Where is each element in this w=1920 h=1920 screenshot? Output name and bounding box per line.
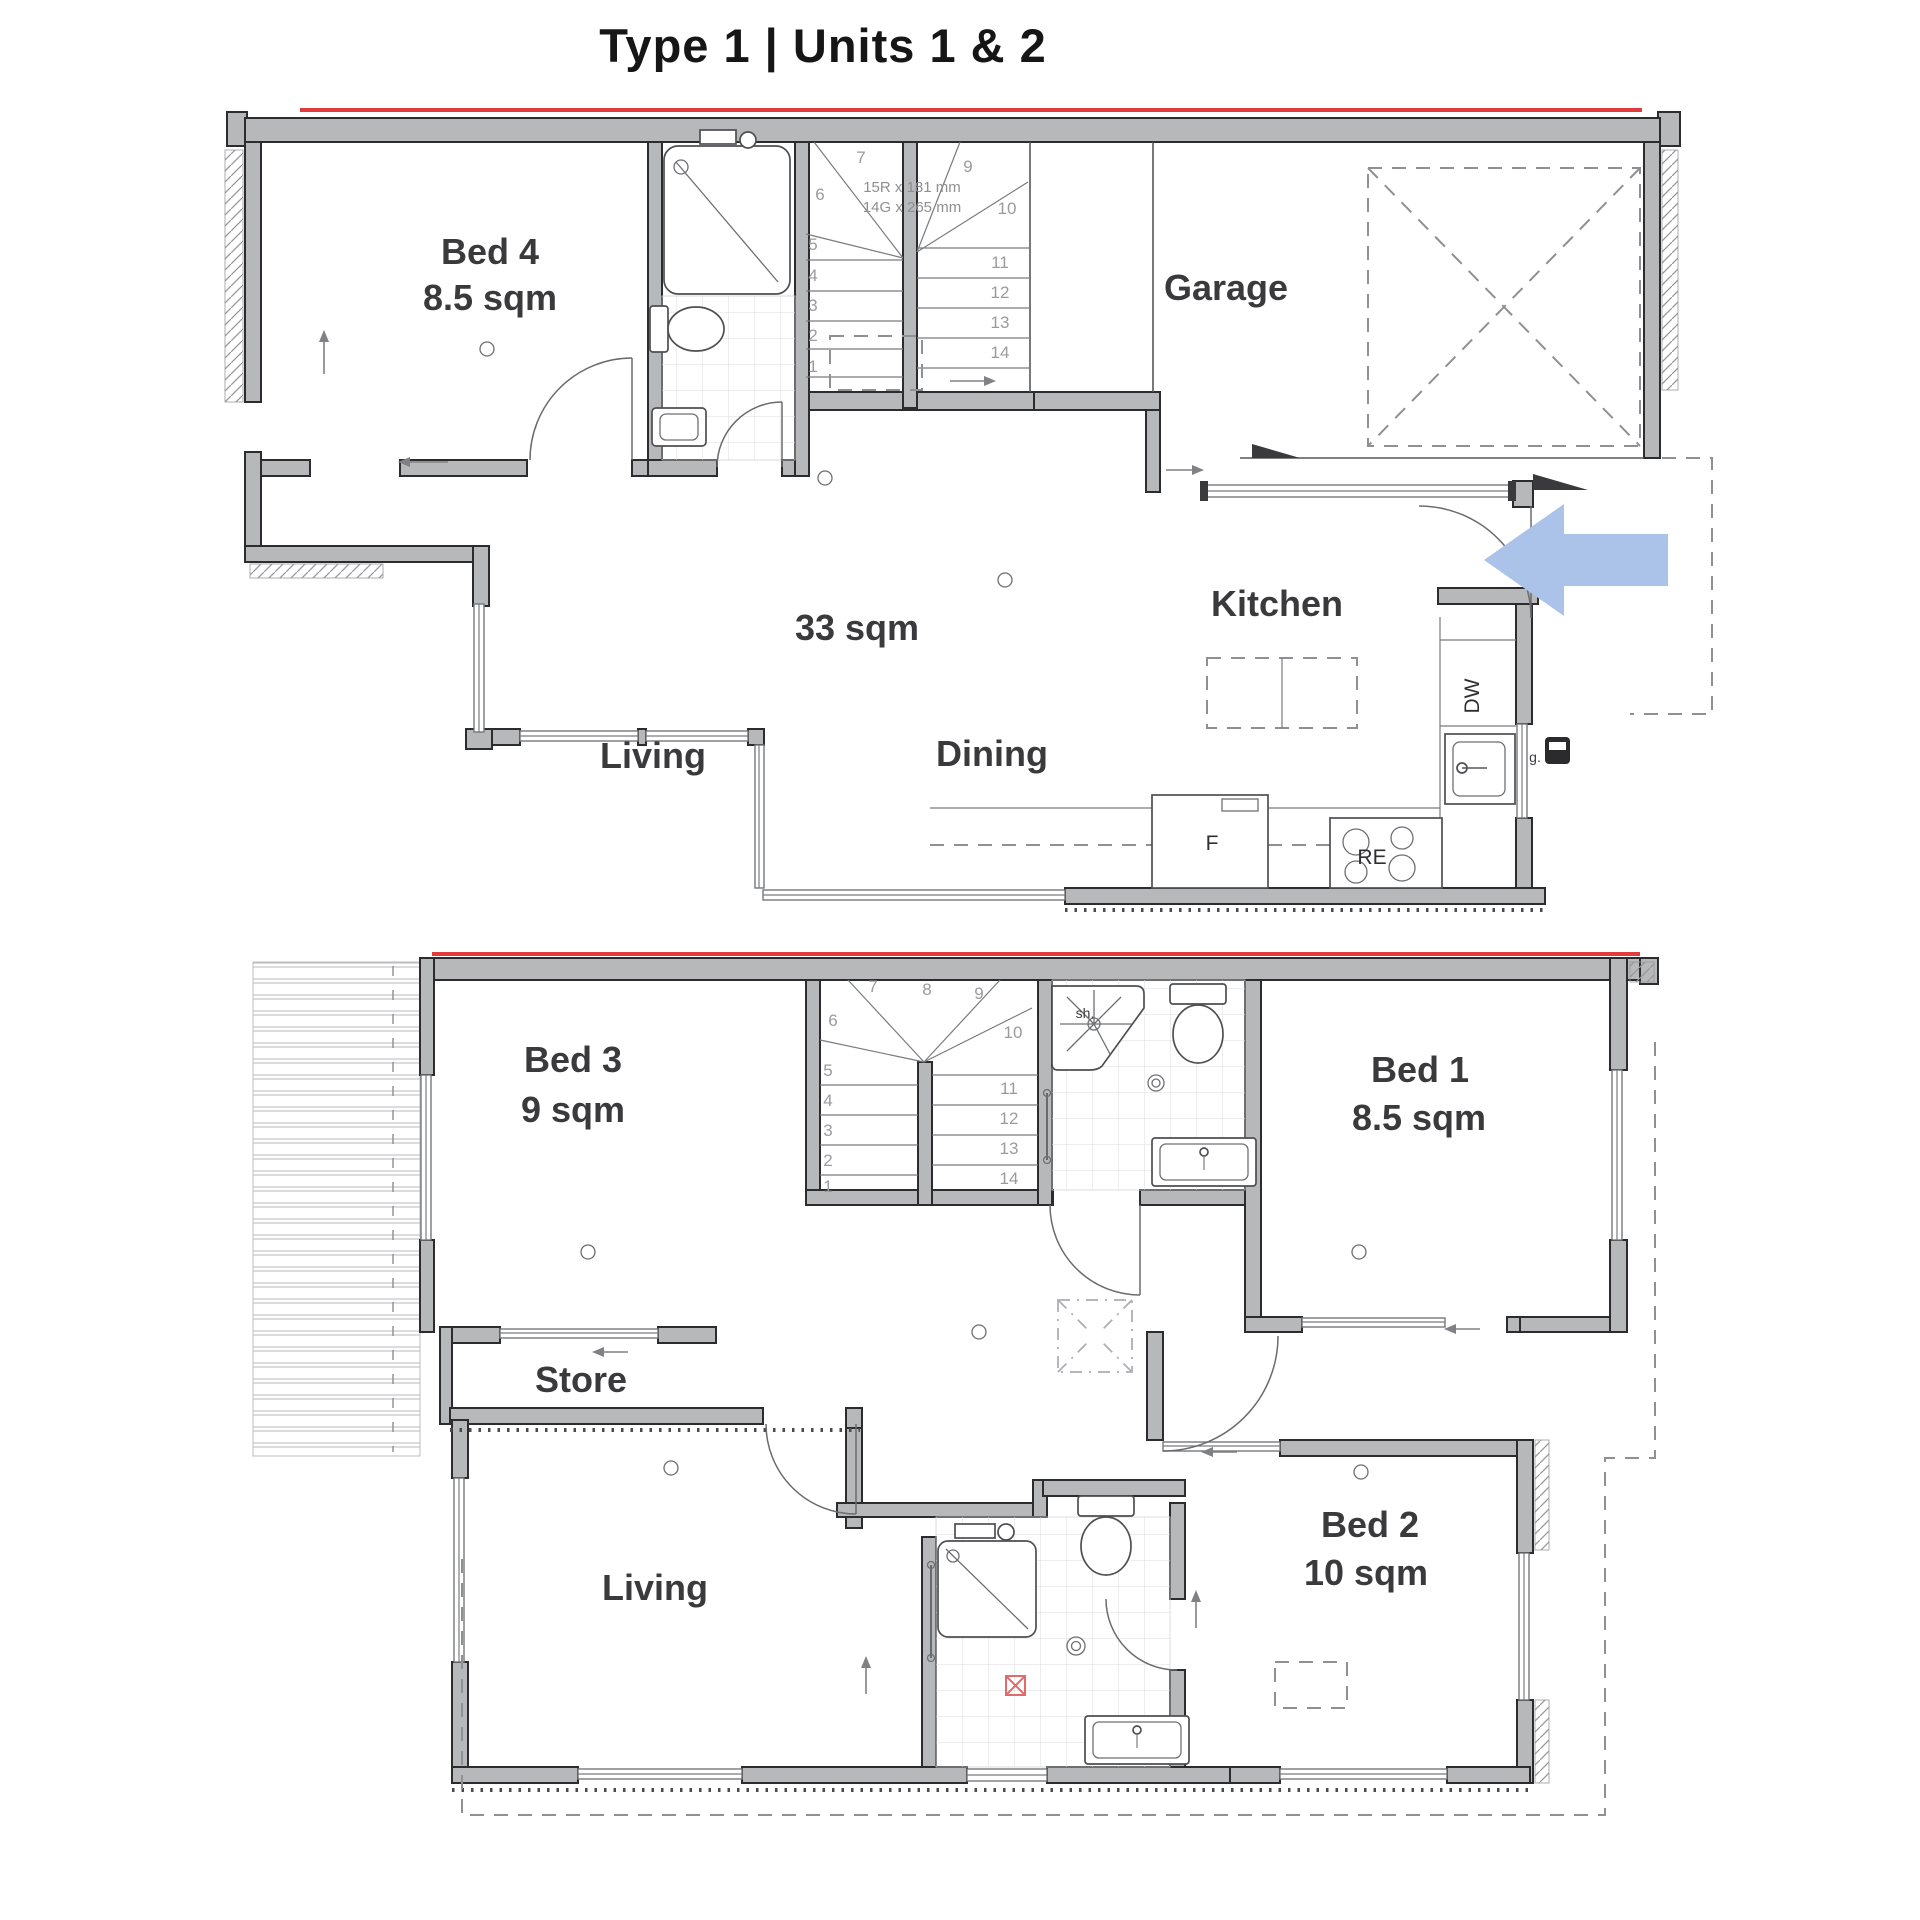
living-door-arc [766,1424,856,1514]
open-area-label: 33 sqm [795,607,919,648]
wardrobe-outline [1275,1662,1347,1708]
upper-bathroom [650,130,795,467]
toilet-icon [1173,1005,1223,1063]
svg-text:3: 3 [808,296,817,315]
stair-note-1: 15R x 181 mm [863,179,961,196]
svg-text:11: 11 [991,253,1009,272]
main-bathroom [928,1496,1190,1767]
svg-text:3: 3 [823,1121,832,1140]
svg-text:7: 7 [868,977,877,996]
bed4-area-label: 8.5 sqm [423,277,557,318]
svg-text:11: 11 [1000,1079,1018,1098]
svg-text:14: 14 [991,343,1010,362]
bed3-area-label: 9 sqm [521,1089,625,1130]
hall [766,1300,1278,1514]
svg-text:1: 1 [823,1177,832,1196]
lower-plan: Bed 3 9 sqm Bed 1 8.5 sqm Store Living B… [253,954,1658,1815]
lower-hatch [1535,962,1654,1783]
floorplan-drawing: Bed 4 8.5 sqm Garage Kitchen 33 sqm Livi… [0,0,1920,1920]
svg-text:9: 9 [963,157,972,176]
bed2-label: Bed 2 [1321,1504,1419,1545]
garage-door-wedge-icon [1252,444,1300,458]
floorplan-page: Type 1 | Units 1 & 2 [0,0,1920,1920]
bed1-door-arc [1163,1336,1278,1451]
svg-text:2: 2 [808,326,817,345]
toilet-cistern-icon [1078,1496,1134,1516]
svg-text:6: 6 [828,1011,837,1030]
bed4-door [530,358,632,460]
living-label-lower: Living [602,1567,708,1608]
kitchen-label: Kitchen [1211,583,1343,624]
bed1-label: Bed 1 [1371,1049,1469,1090]
toilet-icon [668,307,724,351]
svg-text:10: 10 [998,199,1017,218]
store-label: Store [535,1359,627,1400]
svg-text:5: 5 [823,1061,832,1080]
stair-note-2: 14G x 265 mm [863,199,961,216]
svg-text:12: 12 [991,283,1010,302]
range-label: RE [1357,846,1386,869]
svg-text:4: 4 [808,266,817,285]
bed2-area-label: 10 sqm [1304,1552,1428,1593]
gas-meter-icon [1545,737,1570,764]
ensuite-bathroom [1044,980,1257,1295]
svg-text:5: 5 [808,235,817,254]
shower-tap-icon [955,1524,995,1538]
dining-label: Dining [936,733,1048,774]
svg-text:13: 13 [991,313,1010,332]
svg-text:12: 12 [1000,1109,1019,1128]
bed4-label: Bed 4 [441,231,539,272]
svg-text:4: 4 [823,1091,832,1110]
skylight-icon [1058,1300,1132,1372]
svg-text:10: 10 [1004,1023,1023,1042]
toilet-icon [1081,1517,1131,1575]
toilet-cistern-icon [1170,984,1226,1004]
svg-text:6: 6 [815,185,824,204]
svg-text:7: 7 [856,148,865,167]
ensuite-door-arc [1050,1205,1140,1295]
bed3-label: Bed 3 [524,1039,622,1080]
svg-text:8: 8 [922,980,931,999]
svg-text:13: 13 [1000,1139,1019,1158]
svg-text:1: 1 [808,357,817,376]
svg-text:9: 9 [974,984,983,1003]
fridge-label: F [1206,832,1219,855]
svg-text:14: 14 [1000,1169,1019,1188]
toilet-cistern-icon [650,306,668,352]
shower-label: sh. [1076,1005,1095,1021]
deck [253,962,420,1456]
svg-text:2: 2 [823,1151,832,1170]
upper-plan: Bed 4 8.5 sqm Garage Kitchen 33 sqm Livi… [225,110,1712,910]
shower-tray-icon [664,146,790,294]
gas-label: g. [1529,749,1541,765]
living-label-upper: Living [600,735,706,776]
garage-bay [1240,168,1644,458]
garage-label: Garage [1164,267,1288,308]
bed1-area-label: 8.5 sqm [1352,1097,1486,1138]
entry-door-wedge-icon [1533,474,1588,490]
shower-tap-icon [700,130,736,144]
dw-label: DW [1461,678,1484,713]
